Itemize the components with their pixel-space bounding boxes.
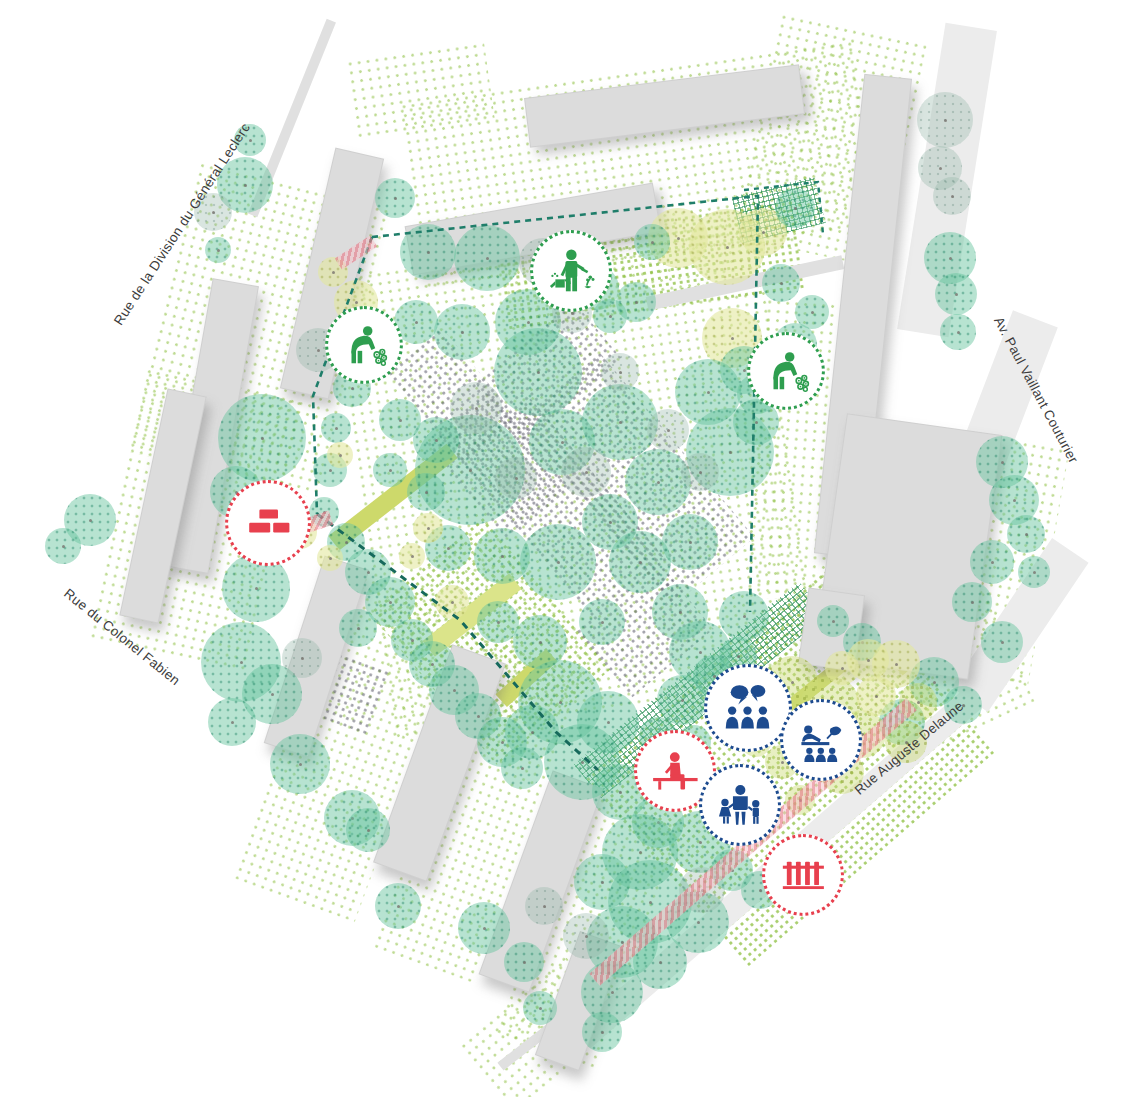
- tree-circle: [981, 621, 1023, 663]
- tree-circle: [346, 808, 390, 852]
- tree-circle: [525, 887, 563, 925]
- tree-circle: [321, 413, 351, 443]
- tree-circle: [825, 651, 859, 685]
- tree-circle: [494, 328, 582, 416]
- tree-circle: [208, 698, 256, 746]
- adult-with-children-icon: [699, 764, 781, 846]
- tree-circle: [375, 178, 415, 218]
- tree-circle: [681, 453, 719, 491]
- tree-circle: [495, 457, 537, 499]
- tree-circle: [940, 314, 976, 350]
- tree-circle: [45, 528, 81, 564]
- tree-circle: [270, 734, 330, 794]
- tree-circle: [579, 599, 625, 645]
- tree-circle: [282, 638, 322, 678]
- tree-circle: [662, 514, 718, 570]
- tree-circle: [561, 447, 611, 497]
- tree-circle: [379, 399, 421, 441]
- bricks-construction-icon: [225, 480, 311, 566]
- tree-circle: [434, 304, 490, 360]
- tree-circle: [762, 264, 800, 302]
- tree-circle: [435, 585, 469, 619]
- tree-circle: [399, 543, 425, 569]
- tree-circle: [593, 299, 627, 333]
- tree-circle: [795, 295, 829, 329]
- group-discussion-icon: [704, 664, 792, 752]
- tree-circle: [520, 524, 596, 600]
- tree-circle: [933, 177, 971, 215]
- tree-circle: [647, 409, 689, 451]
- tree-circle: [523, 991, 557, 1025]
- tree-circle: [373, 453, 407, 487]
- gardener-planting-flowers-icon: [325, 306, 403, 384]
- site-plan: Rue de la Division du Général Leclerc Av…: [0, 0, 1140, 1097]
- tree-circle: [917, 92, 973, 148]
- tree-circle: [1007, 515, 1045, 553]
- tree-circle: [454, 225, 520, 291]
- tree-circle: [477, 601, 519, 643]
- tree-circle: [205, 237, 231, 263]
- tree-circle: [474, 528, 530, 584]
- gardener-watering-icon: [530, 230, 612, 312]
- tree-circle: [413, 513, 443, 543]
- tree-circle: [458, 902, 510, 954]
- tree-circle: [407, 473, 445, 511]
- tree-circle: [563, 913, 609, 959]
- tree-circle: [400, 224, 456, 280]
- tree-circle: [775, 188, 815, 228]
- tree-circle: [675, 359, 741, 425]
- tree-circle: [970, 540, 1014, 584]
- tree-circle: [601, 353, 639, 391]
- tree-circle: [1018, 556, 1050, 588]
- tree-circle: [339, 609, 377, 647]
- tree-circle: [375, 883, 421, 929]
- tree-circle: [719, 591, 769, 641]
- tree-circle: [317, 545, 343, 571]
- tree-circle: [952, 582, 992, 622]
- nature-workshop-table-icon: [780, 699, 862, 781]
- gardener-planting-flowers-icon: [747, 332, 825, 410]
- tree-circle: [504, 942, 544, 982]
- tree-circle: [817, 605, 849, 637]
- tree-circle: [450, 382, 502, 434]
- tree-circle: [625, 449, 691, 515]
- tree-circle: [327, 442, 353, 468]
- fence-icon: [762, 834, 844, 916]
- tree-circle: [634, 224, 670, 260]
- tree-circle: [935, 273, 977, 315]
